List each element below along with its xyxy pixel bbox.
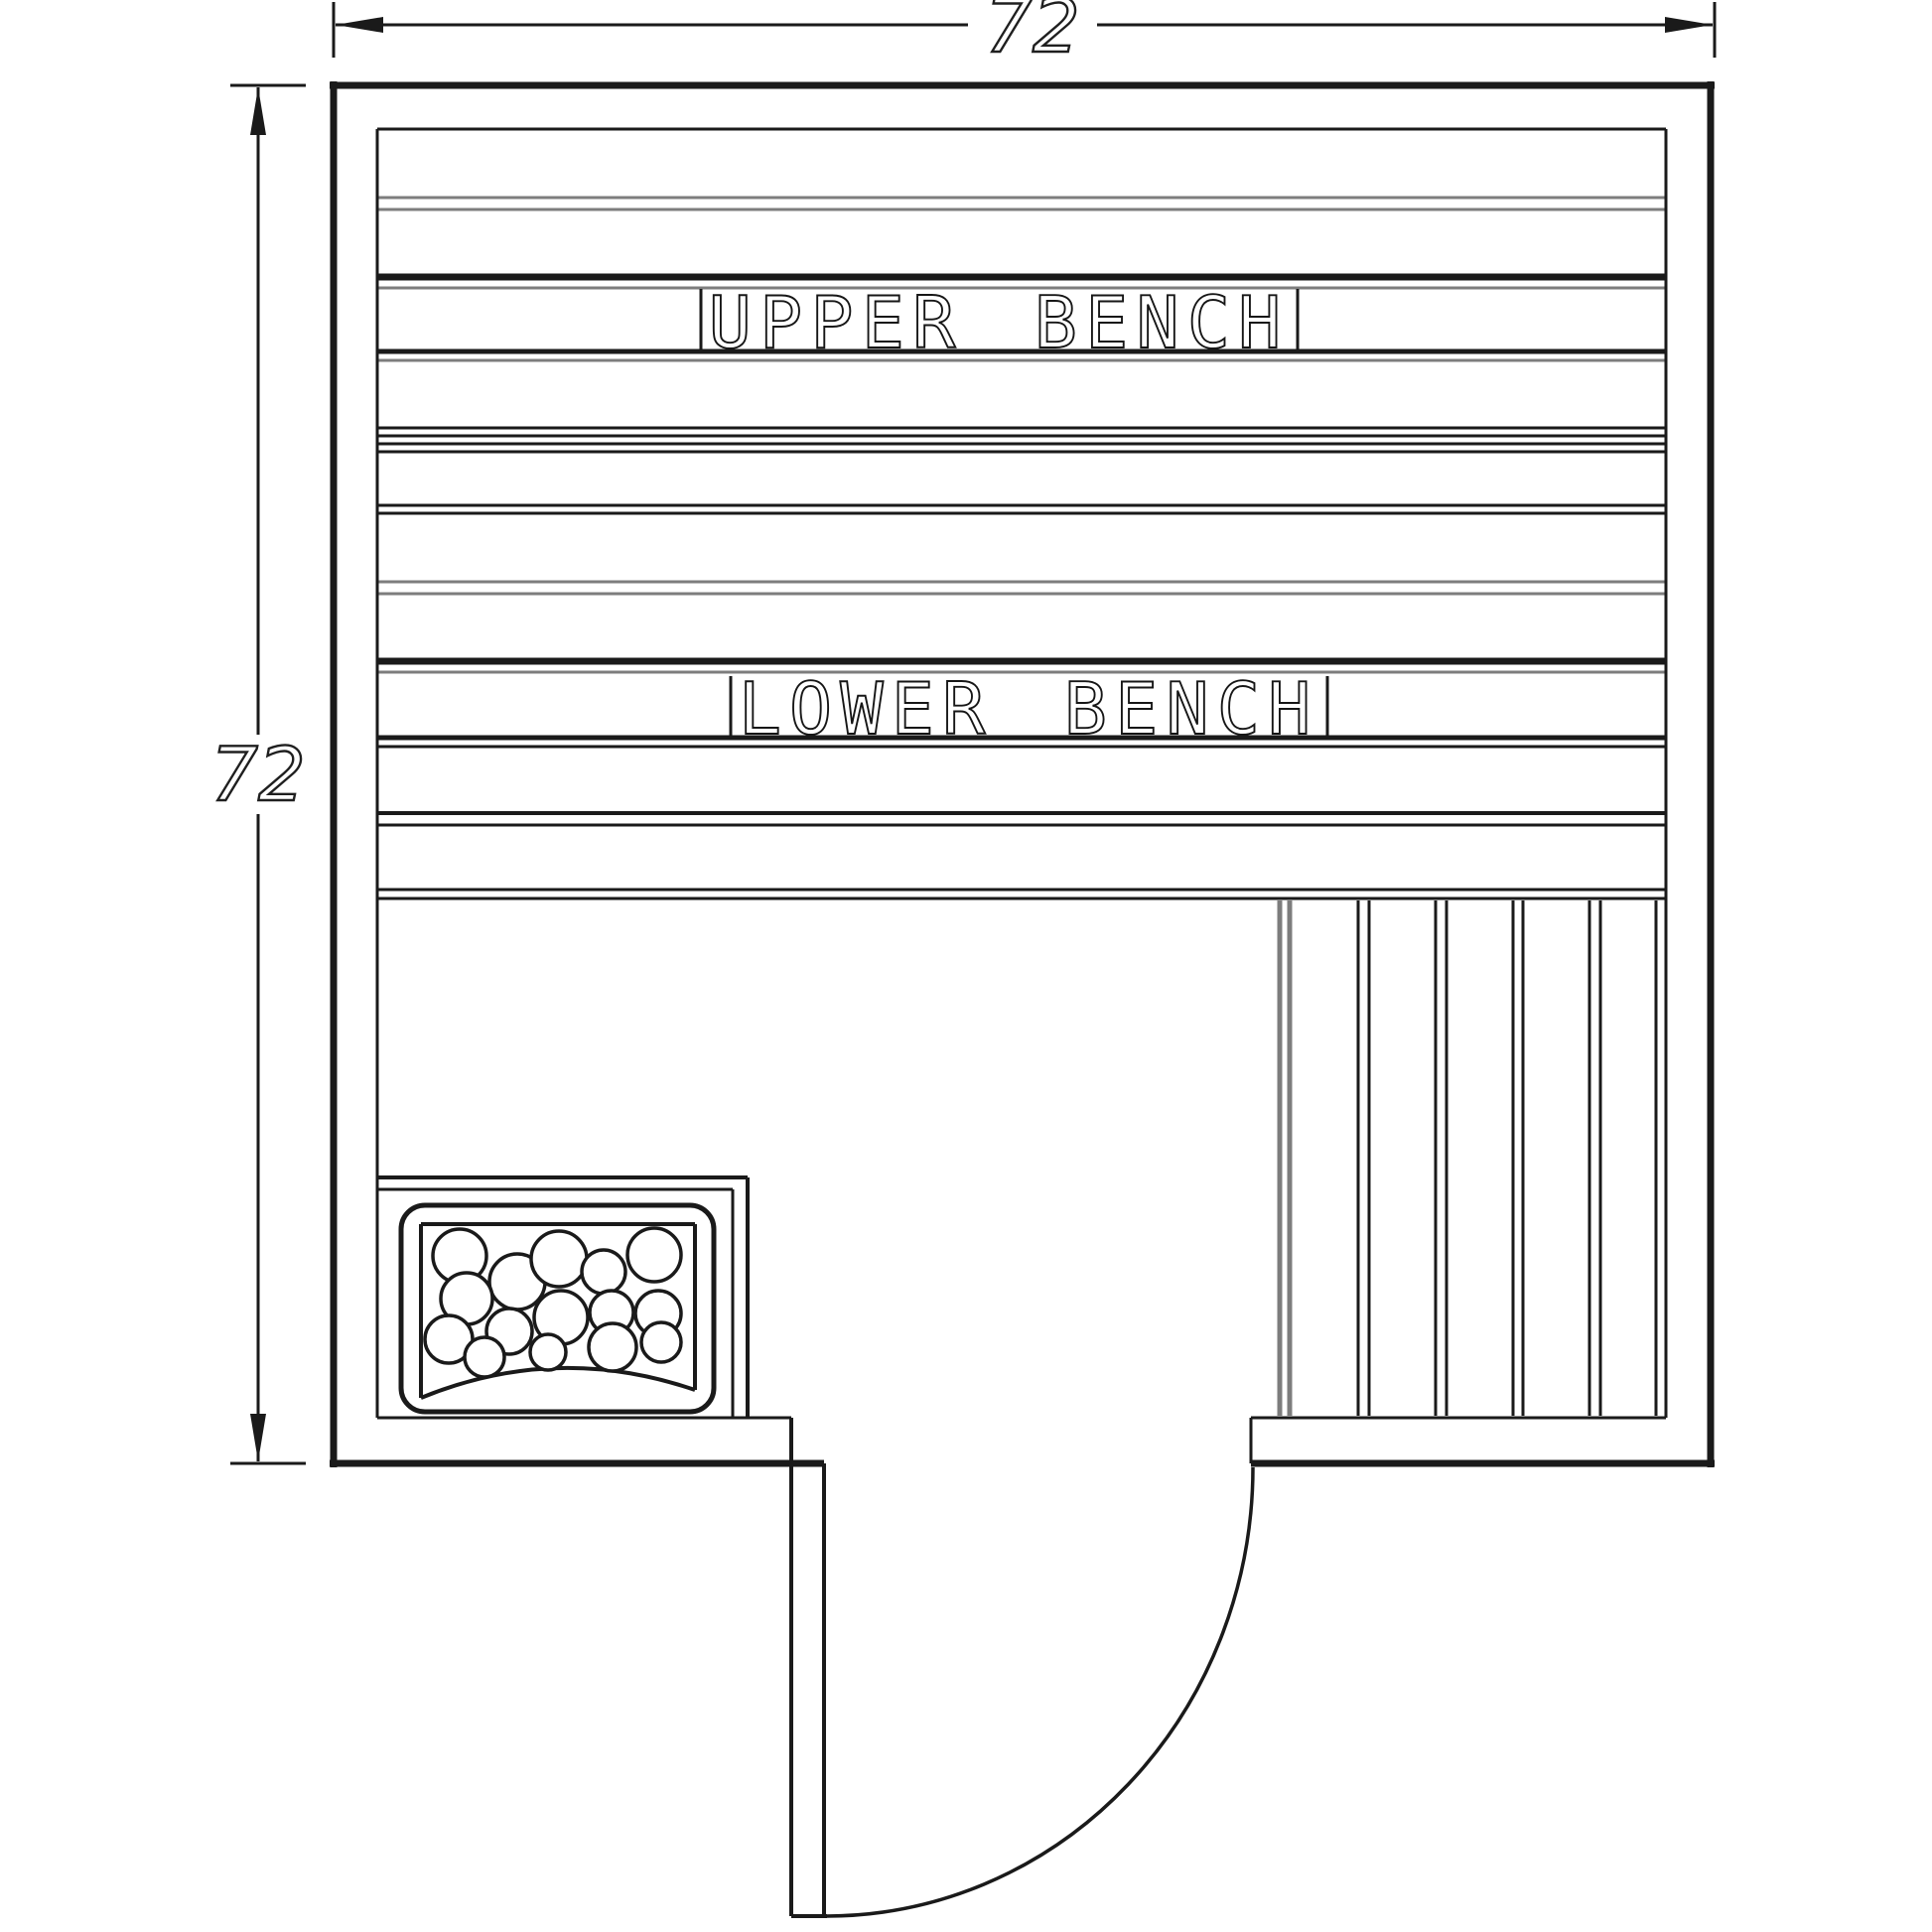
heater-rock xyxy=(530,1334,566,1370)
lower-bench-label: LOWER BENCH xyxy=(739,667,1319,751)
drawing-canvas: 72 72 UPPER BENCH LOWER BENCH xyxy=(0,0,1932,1932)
heater-rock xyxy=(627,1228,681,1282)
sauna-floor-plan: 72 72 UPPER BENCH LOWER BENCH xyxy=(0,0,1932,1932)
rock-tray-arc xyxy=(421,1368,695,1398)
heater-rock xyxy=(465,1337,504,1377)
heater-rock xyxy=(589,1323,636,1371)
door-swing-arc xyxy=(827,1467,1253,1916)
width-dimension-label: 72 xyxy=(985,0,1079,69)
height-dimension-label: 72 xyxy=(210,731,305,818)
arrowhead-down xyxy=(250,1414,266,1461)
heater-rock xyxy=(582,1250,625,1294)
heater-rock xyxy=(531,1231,587,1287)
arrowhead-left xyxy=(336,17,383,33)
arrowhead-right xyxy=(1665,17,1713,33)
heater-with-rocks xyxy=(377,1177,748,1418)
heater-rock xyxy=(641,1322,681,1362)
arrowhead-up xyxy=(250,87,266,135)
door-swing xyxy=(791,1418,1253,1916)
bench-labels: UPPER BENCH LOWER BENCH xyxy=(709,281,1319,751)
upper-bench-label: UPPER BENCH xyxy=(709,281,1290,364)
floor-boards xyxy=(1280,900,1666,1416)
